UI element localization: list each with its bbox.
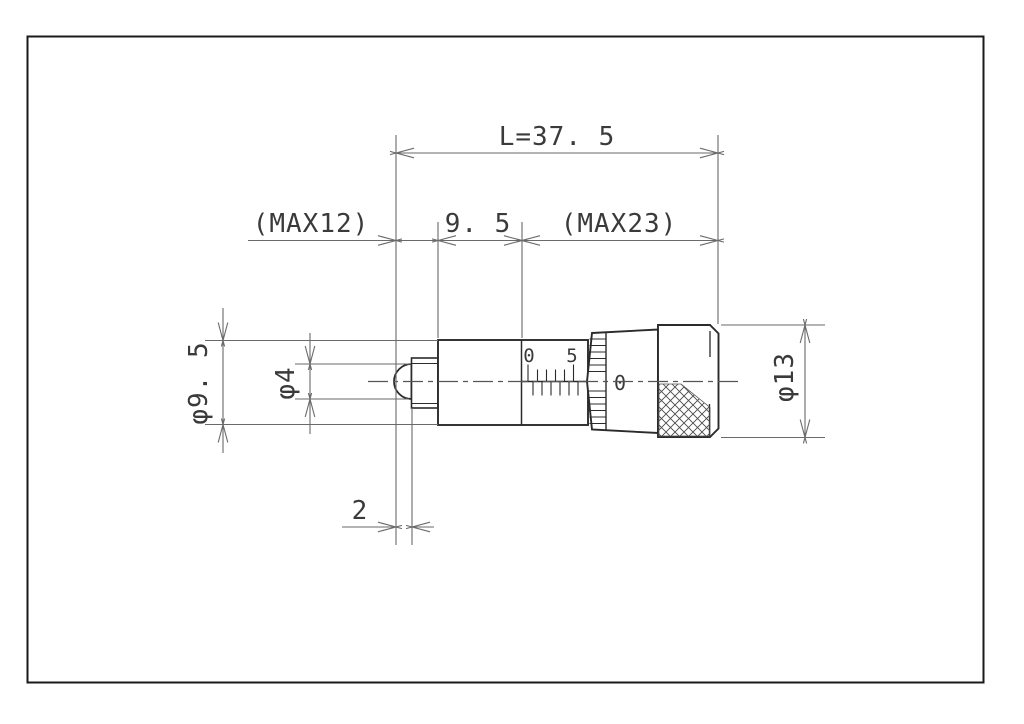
spindle-collar xyxy=(412,358,439,408)
thimble-diameter-label: φ13 xyxy=(770,352,800,402)
drawing-page: 0 5 0 L=37. 5 (MAX12) xyxy=(0,0,1024,724)
overall-length-label: L=37. 5 xyxy=(499,122,616,152)
max-retract-label: (MAX12) xyxy=(253,209,370,239)
max-travel-label: (MAX23) xyxy=(561,209,678,239)
thimble-zero-label: 0 xyxy=(614,371,626,395)
sleeve-five-label: 5 xyxy=(566,345,577,367)
spindle-diameter-label: φ4 xyxy=(271,366,301,399)
sleeve-zero-label: 0 xyxy=(523,345,534,367)
stem-diameter-label: φ9. 5 xyxy=(184,341,214,424)
stem-length-label: 9. 5 xyxy=(445,209,512,239)
tip-protrusion-label: 2 xyxy=(352,496,369,526)
micrometer-head-drawing: 0 5 0 L=37. 5 (MAX12) xyxy=(0,0,1024,724)
